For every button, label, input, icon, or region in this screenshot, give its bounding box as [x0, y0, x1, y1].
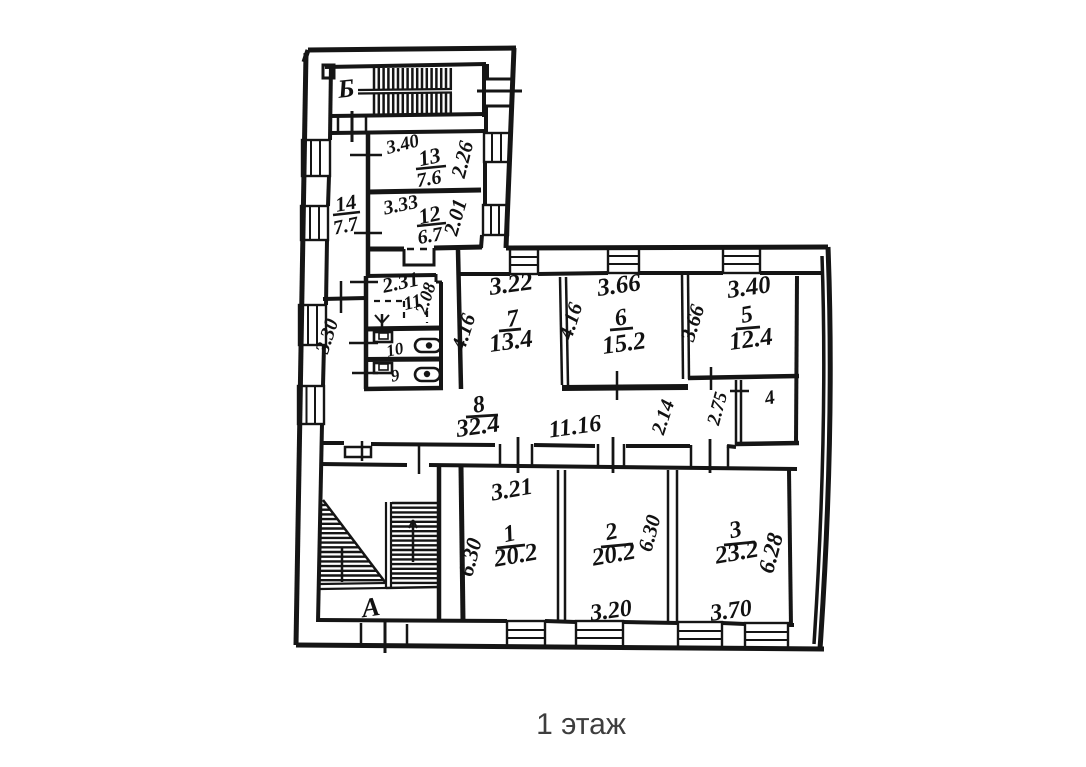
svg-text:4: 4 [762, 386, 777, 410]
svg-text:7.7: 7.7 [331, 213, 361, 240]
svg-text:Б: Б [335, 73, 355, 104]
svg-text:3.30: 3.30 [311, 316, 343, 357]
svg-text:10: 10 [385, 338, 406, 360]
svg-text:3.40: 3.40 [724, 271, 773, 304]
svg-text:3.66: 3.66 [594, 269, 643, 302]
svg-text:2.14: 2.14 [647, 397, 679, 438]
svg-text:3.40: 3.40 [383, 130, 422, 159]
svg-text:23.2: 23.2 [712, 536, 761, 570]
svg-text:12.4: 12.4 [727, 323, 774, 356]
svg-text:20.2: 20.2 [589, 538, 638, 572]
svg-text:6.30: 6.30 [633, 512, 666, 554]
svg-text:11.16: 11.16 [547, 411, 603, 444]
svg-text:3.21: 3.21 [488, 474, 535, 507]
svg-text:15.2: 15.2 [600, 327, 647, 360]
svg-text:6.28: 6.28 [753, 530, 788, 576]
svg-text:13.4: 13.4 [487, 325, 534, 358]
svg-text:9: 9 [389, 365, 401, 385]
svg-text:2.75: 2.75 [703, 389, 732, 428]
svg-text:20.2: 20.2 [491, 539, 540, 573]
svg-text:1 этаж: 1 этаж [536, 708, 626, 741]
svg-text:4.16: 4.16 [553, 299, 588, 343]
svg-text:2.26: 2.26 [446, 138, 479, 181]
svg-text:7.6: 7.6 [415, 166, 443, 192]
svg-text:4.16: 4.16 [446, 310, 481, 354]
svg-text:2.01: 2.01 [438, 196, 471, 239]
svg-text:32.4: 32.4 [453, 410, 501, 443]
svg-text:3.22: 3.22 [486, 268, 534, 301]
svg-text:3.66: 3.66 [675, 301, 710, 345]
svg-text:6.30: 6.30 [453, 535, 487, 579]
svg-text:3.33: 3.33 [380, 191, 420, 220]
